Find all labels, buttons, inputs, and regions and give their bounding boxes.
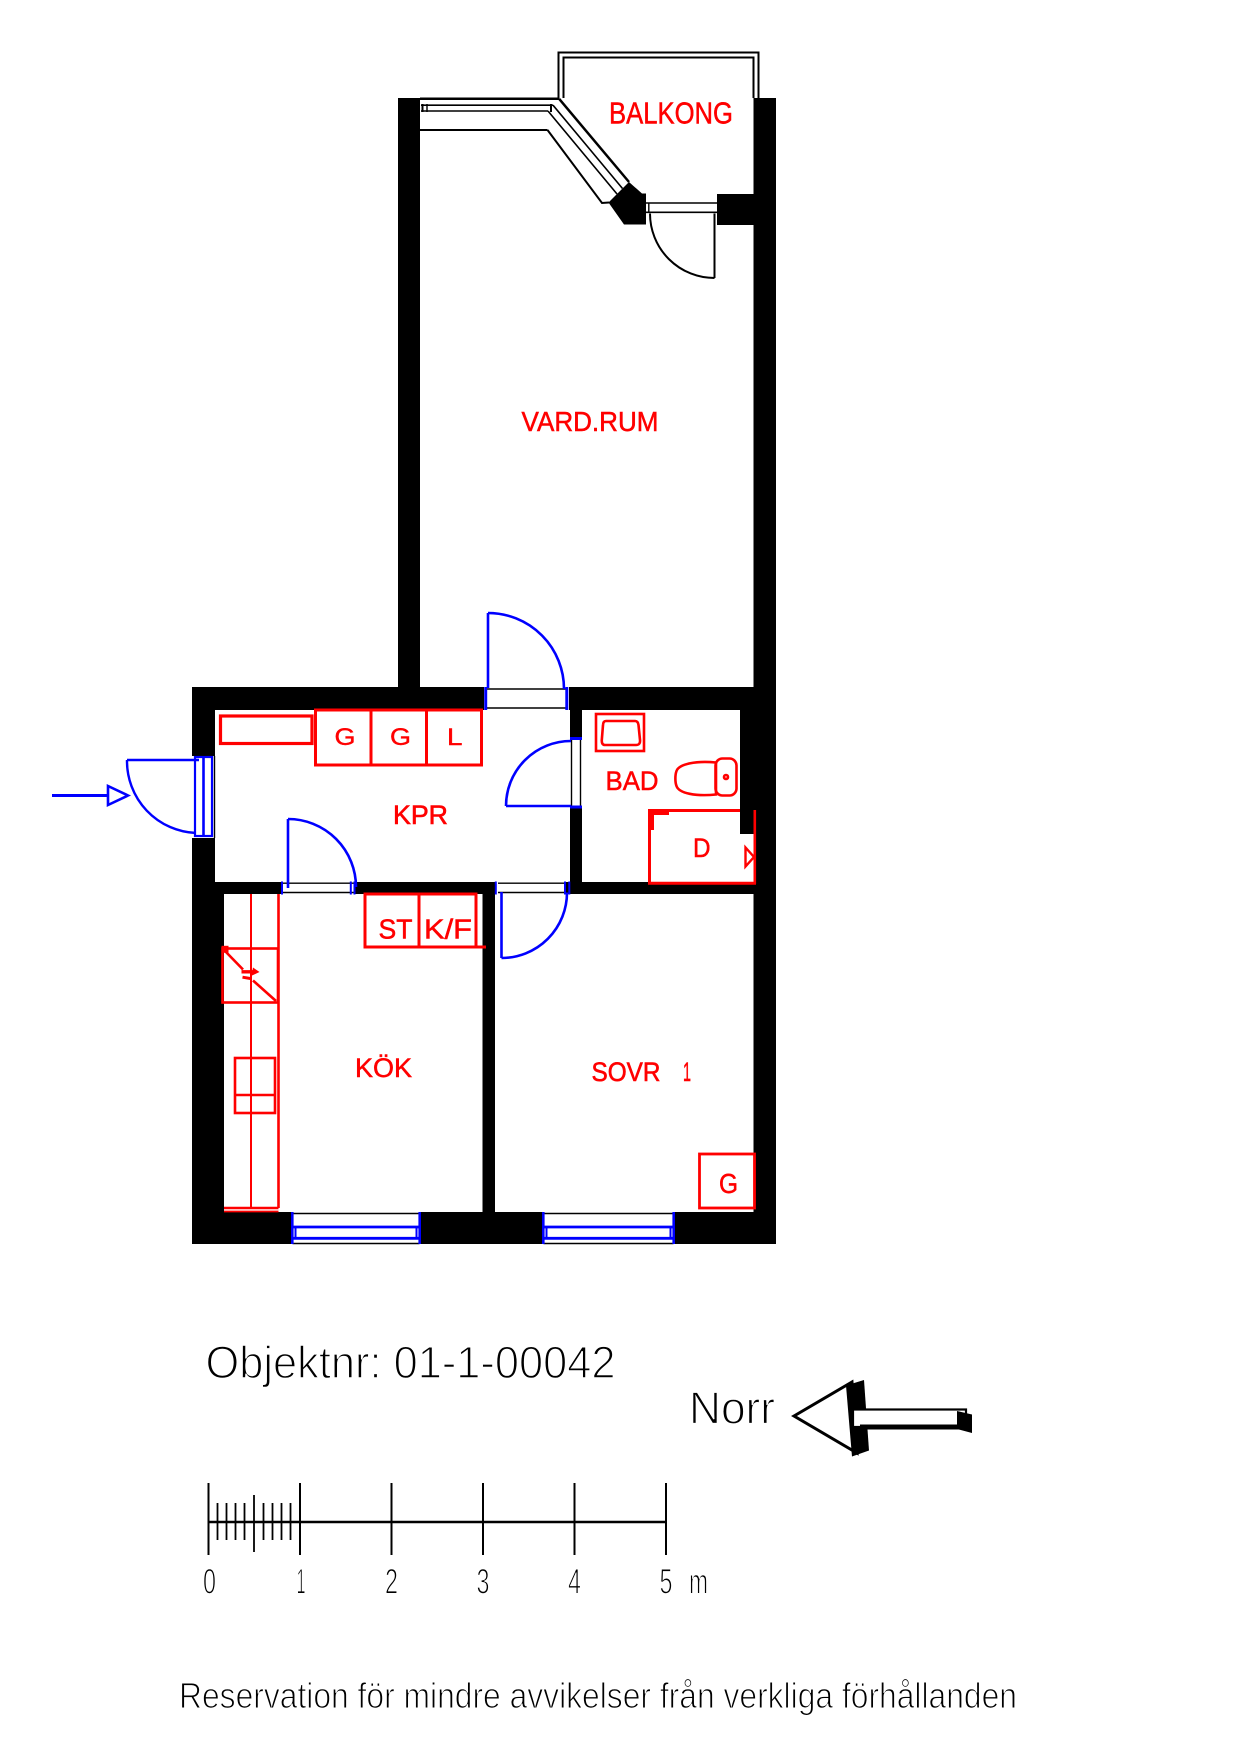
svg-text:G: G — [719, 1168, 738, 1199]
svg-text:m: m — [689, 1563, 708, 1602]
svg-text:Reservation för mindre avvikel: Reservation för mindre avvikelser från v… — [179, 1675, 1017, 1716]
svg-text:4: 4 — [568, 1563, 581, 1602]
svg-text:Objektnr: 01-1-00042: Objektnr: 01-1-00042 — [206, 1337, 616, 1388]
svg-text:L: L — [447, 724, 463, 751]
svg-text:2: 2 — [385, 1563, 398, 1602]
svg-text:VARD.RUM: VARD.RUM — [522, 406, 659, 437]
svg-text:G: G — [390, 724, 411, 751]
svg-text:1: 1 — [297, 1563, 306, 1602]
svg-text:1: 1 — [683, 1057, 691, 1087]
svg-text:3: 3 — [477, 1563, 490, 1602]
svg-text:KÖK: KÖK — [355, 1053, 412, 1083]
svg-text:BALKONG: BALKONG — [609, 96, 733, 131]
svg-text:G: G — [335, 724, 356, 751]
svg-text:0: 0 — [203, 1563, 216, 1602]
svg-text:KPR: KPR — [393, 800, 448, 830]
svg-text:ST: ST — [379, 914, 413, 945]
svg-text:Norr: Norr — [689, 1383, 775, 1434]
svg-text:D: D — [693, 833, 711, 863]
svg-text:SOVR: SOVR — [592, 1057, 661, 1087]
svg-text:5: 5 — [660, 1563, 673, 1602]
svg-text:BAD: BAD — [606, 766, 659, 796]
svg-text:K/F: K/F — [424, 914, 472, 945]
